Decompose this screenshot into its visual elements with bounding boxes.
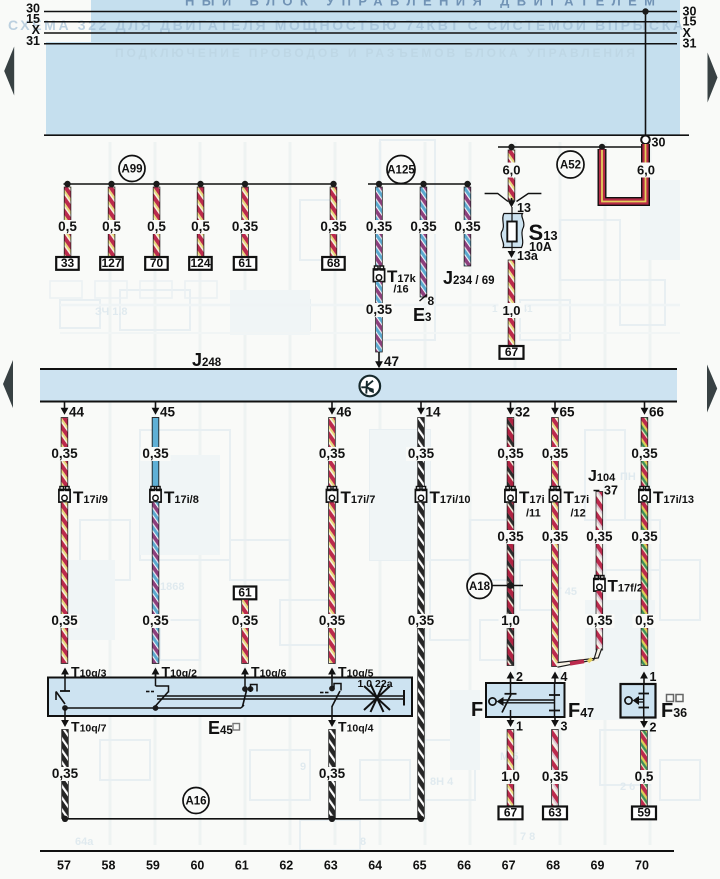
svg-text:70: 70 bbox=[150, 256, 164, 270]
svg-text:30: 30 bbox=[652, 136, 666, 150]
svg-text:0,5: 0,5 bbox=[191, 219, 210, 234]
svg-text:67: 67 bbox=[505, 345, 519, 359]
svg-text:68: 68 bbox=[327, 256, 341, 270]
svg-text:63: 63 bbox=[548, 806, 562, 820]
svg-text:0,35: 0,35 bbox=[51, 446, 78, 461]
svg-text:0,35: 0,35 bbox=[542, 769, 569, 784]
svg-text:64: 64 bbox=[368, 859, 382, 873]
svg-text:0,5: 0,5 bbox=[58, 219, 77, 234]
svg-text:0,35: 0,35 bbox=[542, 529, 569, 544]
svg-text:A125: A125 bbox=[387, 165, 415, 177]
svg-text:32: 32 bbox=[515, 404, 530, 419]
svg-text:2: 2 bbox=[516, 670, 523, 684]
svg-text:4: 4 bbox=[561, 670, 568, 684]
svg-text:68: 68 bbox=[546, 859, 560, 873]
svg-text:9: 9 bbox=[300, 761, 306, 773]
svg-text:F: F bbox=[471, 699, 483, 721]
svg-text:ЗЧ 1.8: ЗЧ 1.8 bbox=[95, 306, 128, 318]
svg-text:0,35: 0,35 bbox=[366, 302, 393, 317]
svg-text:6,0: 6,0 bbox=[502, 163, 520, 178]
svg-text:67: 67 bbox=[502, 859, 516, 873]
svg-text:A52: A52 bbox=[560, 160, 581, 172]
svg-text:0,35: 0,35 bbox=[142, 446, 169, 461]
svg-text:0,35: 0,35 bbox=[366, 219, 393, 234]
svg-text:0,35: 0,35 bbox=[408, 613, 435, 628]
svg-text:0,5: 0,5 bbox=[635, 613, 654, 628]
svg-text:59: 59 bbox=[637, 806, 651, 820]
svg-text:0,35: 0,35 bbox=[410, 219, 437, 234]
svg-text:0,35: 0,35 bbox=[497, 529, 524, 544]
svg-text:0,35: 0,35 bbox=[586, 529, 613, 544]
svg-text:67: 67 bbox=[504, 806, 518, 820]
svg-text:64а: 64а bbox=[75, 836, 94, 848]
svg-text:13a: 13a bbox=[517, 249, 539, 263]
svg-text:0,35: 0,35 bbox=[51, 613, 78, 628]
svg-text:1,0: 1,0 bbox=[501, 613, 520, 628]
svg-text:31: 31 bbox=[26, 34, 40, 48]
svg-text:0,35: 0,35 bbox=[542, 446, 569, 461]
svg-text:62: 62 bbox=[279, 859, 293, 873]
svg-text:61: 61 bbox=[235, 859, 249, 873]
svg-text:57: 57 bbox=[57, 859, 71, 873]
svg-text:59: 59 bbox=[146, 859, 160, 873]
svg-text:ПН: ПН bbox=[620, 471, 636, 483]
svg-text:0,5: 0,5 bbox=[635, 769, 654, 784]
svg-text:6,0: 6,0 bbox=[637, 163, 655, 178]
svg-text:0,35: 0,35 bbox=[319, 613, 346, 628]
svg-text:0,35: 0,35 bbox=[142, 613, 169, 628]
svg-text:0,35: 0,35 bbox=[497, 446, 524, 461]
svg-text:58: 58 bbox=[102, 859, 116, 873]
svg-text:1,0: 1,0 bbox=[502, 303, 520, 318]
svg-text:0,35: 0,35 bbox=[631, 529, 658, 544]
svg-text:1: 1 bbox=[516, 720, 523, 734]
svg-text:69: 69 bbox=[591, 859, 605, 873]
svg-text:0,5: 0,5 bbox=[147, 219, 166, 234]
svg-text:8: 8 bbox=[428, 294, 435, 308]
svg-text:0,35: 0,35 bbox=[320, 219, 347, 234]
svg-text:1868: 1868 bbox=[160, 581, 184, 593]
svg-text:127: 127 bbox=[101, 256, 121, 270]
svg-text:0,35: 0,35 bbox=[52, 766, 79, 781]
svg-text:/16: /16 bbox=[393, 284, 408, 296]
svg-text:7 8: 7 8 bbox=[520, 831, 535, 843]
svg-text:A18: A18 bbox=[469, 581, 491, 593]
svg-text:A16: A16 bbox=[185, 796, 206, 808]
svg-text:0,5: 0,5 bbox=[102, 219, 121, 234]
svg-text:0,35: 0,35 bbox=[454, 219, 481, 234]
svg-text:/12: /12 bbox=[571, 508, 586, 520]
svg-text:45: 45 bbox=[160, 404, 176, 419]
svg-text:0,35: 0,35 bbox=[319, 766, 346, 781]
svg-text:0,35: 0,35 bbox=[408, 446, 435, 461]
svg-text:СХЕМА 322 ДЛЯ ДВИГАТЕЛЯ МОЩНОС: СХЕМА 322 ДЛЯ ДВИГАТЕЛЯ МОЩНОСТЬЮ 74КВТ … bbox=[8, 17, 683, 33]
svg-text:8Н 4: 8Н 4 bbox=[430, 776, 454, 788]
svg-text:0,35: 0,35 bbox=[319, 446, 346, 461]
svg-text:1,0: 1,0 bbox=[501, 769, 520, 784]
svg-text:70: 70 bbox=[635, 859, 649, 873]
svg-text:66: 66 bbox=[457, 859, 471, 873]
svg-text:8: 8 bbox=[360, 836, 366, 848]
svg-text:66: 66 bbox=[649, 404, 665, 419]
svg-text:33: 33 bbox=[61, 256, 75, 270]
svg-text:44: 44 bbox=[69, 404, 85, 419]
svg-text:37: 37 bbox=[604, 484, 618, 498]
svg-text:0,35: 0,35 bbox=[586, 613, 613, 628]
svg-text:60: 60 bbox=[190, 859, 204, 873]
svg-text:A99: A99 bbox=[121, 164, 142, 176]
svg-text:/11: /11 bbox=[526, 508, 541, 520]
svg-text:0,35: 0,35 bbox=[631, 446, 658, 461]
svg-text:65: 65 bbox=[560, 404, 576, 419]
svg-text:46: 46 bbox=[337, 404, 353, 419]
svg-text:3: 3 bbox=[561, 720, 568, 734]
svg-text:14: 14 bbox=[426, 404, 442, 419]
svg-text:31: 31 bbox=[683, 37, 697, 51]
svg-text:63: 63 bbox=[324, 859, 338, 873]
svg-text:0,35: 0,35 bbox=[232, 613, 259, 628]
svg-text:65: 65 bbox=[413, 859, 427, 873]
svg-text:2: 2 bbox=[650, 721, 657, 735]
svg-text:61: 61 bbox=[238, 256, 252, 270]
svg-text:124: 124 bbox=[190, 256, 210, 270]
svg-text:61: 61 bbox=[238, 586, 252, 600]
svg-text:47: 47 bbox=[384, 354, 399, 369]
svg-text:0,35: 0,35 bbox=[232, 219, 259, 234]
svg-text:1: 1 bbox=[650, 670, 657, 684]
